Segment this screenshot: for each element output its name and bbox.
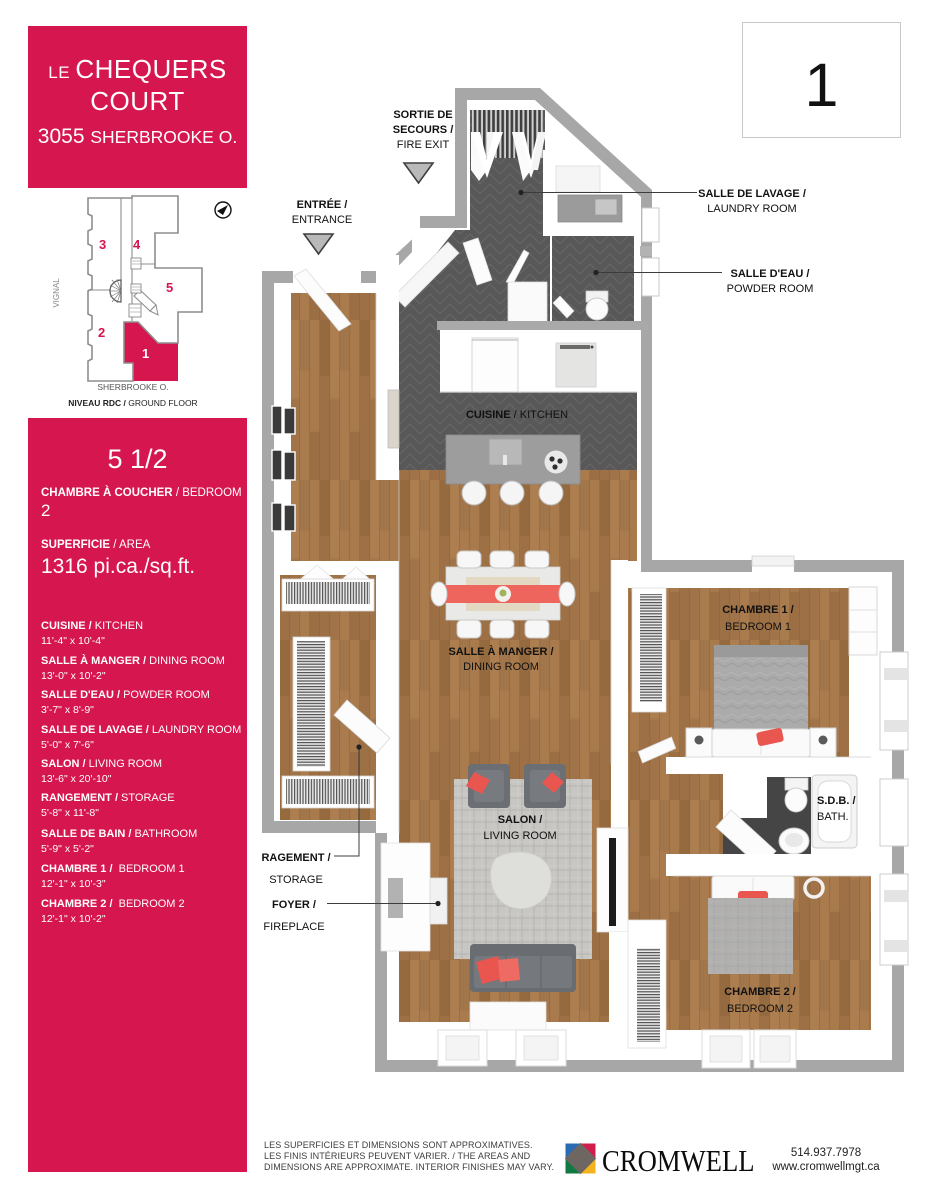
svg-text:SALON /: SALON /: [498, 814, 543, 826]
svg-text:FOYER /: FOYER /: [272, 899, 316, 911]
svg-text:RAGEMENT /: RAGEMENT /: [261, 852, 330, 864]
svg-text:CHAMBRE 2 /: CHAMBRE 2 /: [724, 986, 796, 998]
svg-text:POWDER ROOM: POWDER ROOM: [727, 283, 814, 295]
svg-text:CHAMBRE 1 /: CHAMBRE 1 /: [722, 604, 794, 616]
svg-text:SORTIE DE: SORTIE DE: [393, 109, 452, 121]
svg-text:S.D.B. /: S.D.B. /: [817, 795, 856, 807]
svg-text:SALLE D'EAU /: SALLE D'EAU /: [730, 268, 809, 280]
svg-text:ENTRÉE /: ENTRÉE /: [297, 198, 348, 211]
svg-text:FIRE EXIT: FIRE EXIT: [397, 139, 450, 151]
svg-text:ENTRANCE: ENTRANCE: [292, 214, 353, 226]
svg-text:CUISINE / KITCHEN: CUISINE / KITCHEN: [466, 409, 568, 421]
svg-text:BATH.: BATH.: [817, 811, 849, 823]
svg-text:SALLE À MANGER /: SALLE À MANGER /: [448, 645, 553, 658]
svg-text:SECOURS /: SECOURS /: [393, 124, 454, 136]
svg-text:LIVING ROOM: LIVING ROOM: [483, 830, 556, 842]
svg-text:BEDROOM 1: BEDROOM 1: [725, 621, 791, 633]
svg-text:DINING ROOM: DINING ROOM: [463, 661, 539, 673]
svg-text:FIREPLACE: FIREPLACE: [263, 921, 324, 933]
svg-text:LAUNDRY ROOM: LAUNDRY ROOM: [707, 203, 796, 215]
svg-text:STORAGE: STORAGE: [269, 874, 323, 886]
svg-text:SALLE DE LAVAGE /: SALLE DE LAVAGE /: [698, 188, 806, 200]
svg-text:BEDROOM 2: BEDROOM 2: [727, 1003, 793, 1015]
